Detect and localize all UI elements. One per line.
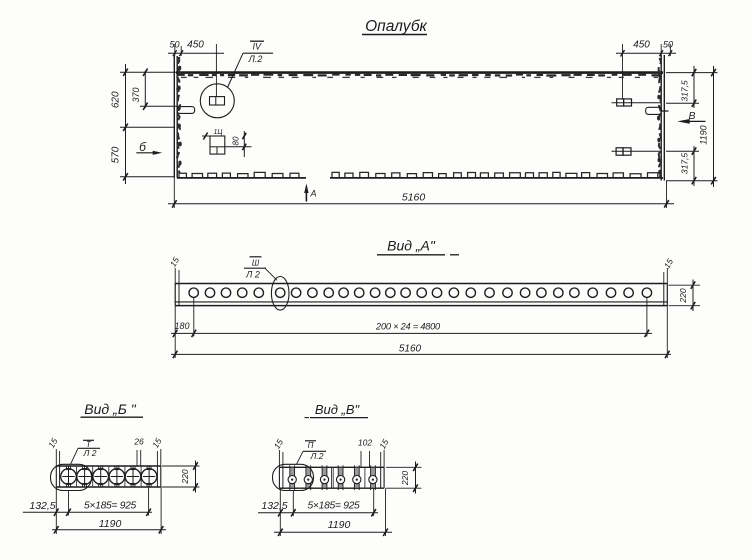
svg-text:317,5: 317,5 xyxy=(680,80,690,102)
svg-text:5×185= 925: 5×185= 925 xyxy=(84,501,137,512)
svg-text:Опалубк: Опалубк xyxy=(365,18,427,35)
svg-text:Л 2: Л 2 xyxy=(245,270,260,280)
svg-text:80: 80 xyxy=(232,136,241,145)
svg-text:220: 220 xyxy=(400,471,410,486)
svg-text:1190: 1190 xyxy=(699,125,709,144)
svg-text:1190: 1190 xyxy=(328,519,351,531)
svg-text:317,5: 317,5 xyxy=(680,153,690,175)
svg-text:200 × 24 = 4800: 200 × 24 = 4800 xyxy=(375,322,441,332)
svg-text:П: П xyxy=(308,441,314,450)
svg-text:5160: 5160 xyxy=(402,192,426,204)
svg-text:620: 620 xyxy=(111,91,122,108)
svg-text:220: 220 xyxy=(678,288,688,303)
svg-text:Л 2: Л 2 xyxy=(83,448,97,458)
svg-text:26: 26 xyxy=(133,437,144,447)
svg-text:Вид „В": Вид „В" xyxy=(315,402,361,417)
svg-text:А: А xyxy=(309,189,316,199)
svg-text:180: 180 xyxy=(174,321,189,331)
svg-text:1190: 1190 xyxy=(99,518,122,530)
svg-text:Л.2: Л.2 xyxy=(248,54,263,64)
svg-text:570: 570 xyxy=(111,146,122,163)
svg-text:50: 50 xyxy=(663,40,673,50)
svg-text:5160: 5160 xyxy=(399,344,422,355)
svg-text:1Ц: 1Ц xyxy=(214,129,223,136)
svg-text:102: 102 xyxy=(358,438,372,448)
svg-text:132,5: 132,5 xyxy=(261,500,287,512)
svg-text:Вид „А": Вид „А" xyxy=(387,238,436,254)
svg-text:450: 450 xyxy=(187,40,204,51)
svg-text:IV: IV xyxy=(253,42,263,52)
svg-text:450: 450 xyxy=(633,40,650,51)
svg-text:50: 50 xyxy=(169,40,179,50)
svg-text:220: 220 xyxy=(180,469,190,484)
svg-text:132,5: 132,5 xyxy=(29,500,55,512)
svg-text:Ш: Ш xyxy=(252,258,260,267)
svg-text:5×185= 925: 5×185= 925 xyxy=(308,501,361,512)
svg-text:Вид „Б ": Вид „Б " xyxy=(84,401,136,417)
svg-text:370: 370 xyxy=(131,87,141,102)
svg-text:Л.2: Л.2 xyxy=(310,451,324,461)
